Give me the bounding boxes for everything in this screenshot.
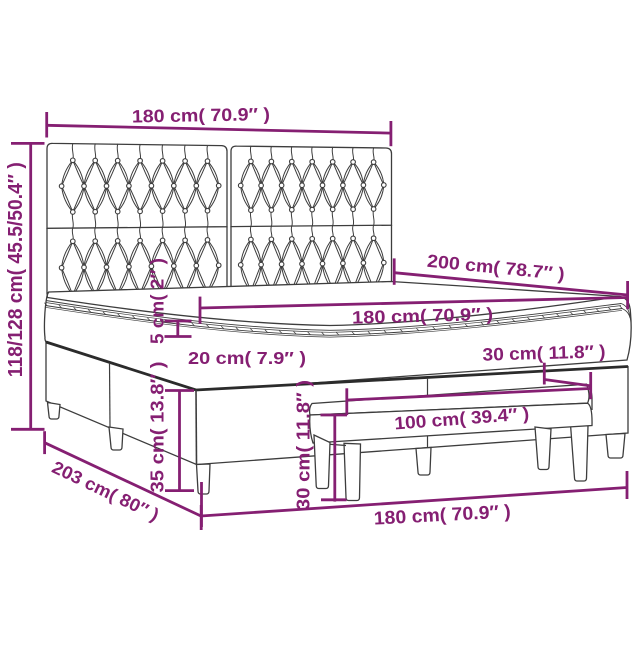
svg-text:180 cm( 70.9″ ): 180 cm( 70.9″ ) (132, 104, 270, 126)
svg-text:118/128 cm( 45.5/50.4″ ): 118/128 cm( 45.5/50.4″ ) (5, 162, 27, 377)
svg-text:35 cm( 13.8″ ): 35 cm( 13.8″ ) (147, 362, 168, 493)
svg-text:20 cm( 7.9″ ): 20 cm( 7.9″ ) (188, 348, 306, 368)
svg-text:5 cm( 2″ ): 5 cm( 2″ ) (146, 258, 167, 344)
svg-text:30 cm( 11.8″ ): 30 cm( 11.8″ ) (293, 380, 314, 510)
svg-text:30 cm( 11.8″ ): 30 cm( 11.8″ ) (482, 341, 606, 364)
svg-text:180 cm( 70.9″ ): 180 cm( 70.9″ ) (352, 304, 494, 328)
